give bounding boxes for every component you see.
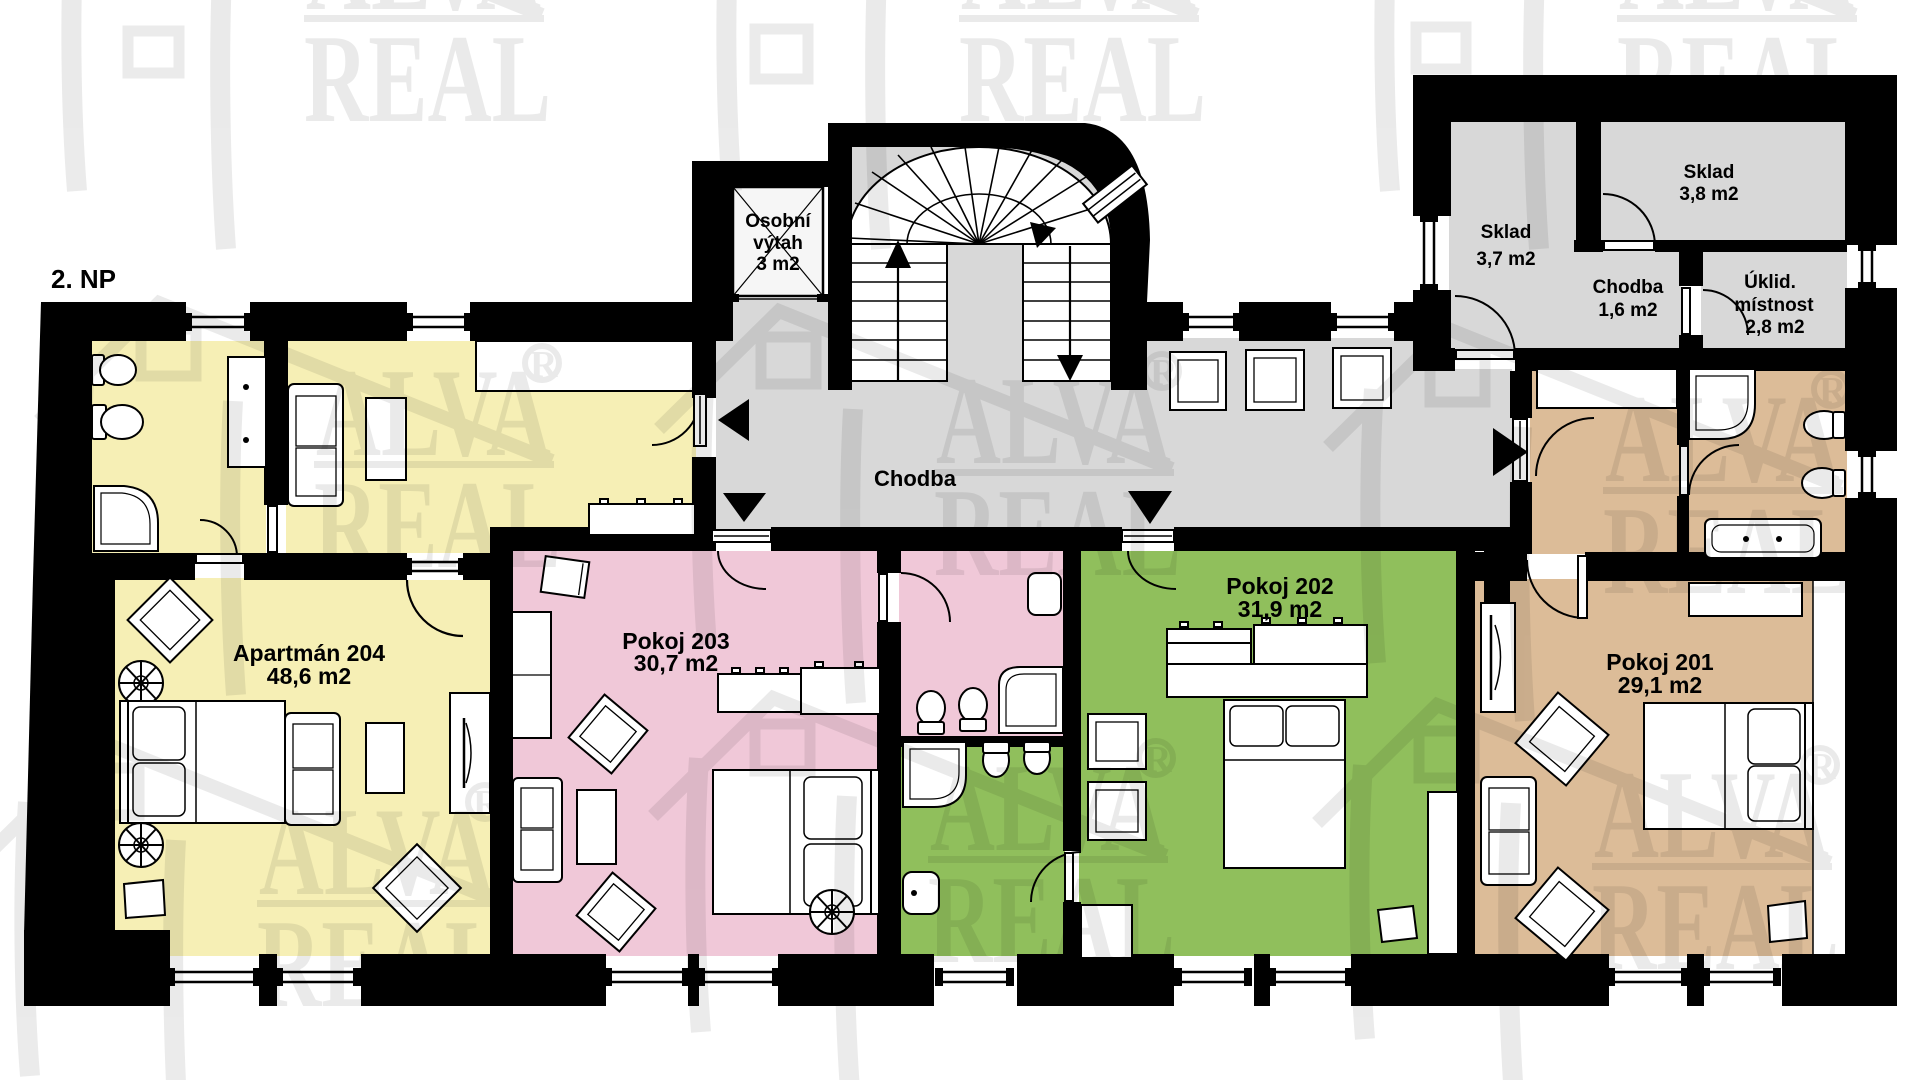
svg-text:3,8 m2: 3,8 m2 (1679, 184, 1738, 205)
svg-text:místnost: místnost (1734, 295, 1814, 316)
svg-text:Sklad: Sklad (1684, 162, 1735, 183)
svg-text:29,1 m2: 29,1 m2 (1618, 672, 1702, 698)
svg-text:výtah: výtah (753, 233, 803, 254)
svg-text:30,7 m2: 30,7 m2 (634, 650, 718, 676)
svg-text:31,9 m2: 31,9 m2 (1238, 596, 1322, 622)
svg-text:Chodba: Chodba (1593, 277, 1664, 298)
svg-text:2,8 m2: 2,8 m2 (1745, 317, 1804, 338)
svg-text:Úklid.: Úklid. (1744, 271, 1796, 293)
svg-text:Sklad: Sklad (1481, 222, 1532, 243)
svg-text:3,7 m2: 3,7 m2 (1476, 249, 1535, 270)
svg-text:2. NP: 2. NP (51, 264, 116, 294)
svg-text:Osobní: Osobní (745, 211, 811, 232)
svg-text:1,6 m2: 1,6 m2 (1598, 300, 1657, 321)
svg-text:3 m2: 3 m2 (756, 254, 799, 275)
svg-text:48,6 m2: 48,6 m2 (267, 663, 351, 689)
